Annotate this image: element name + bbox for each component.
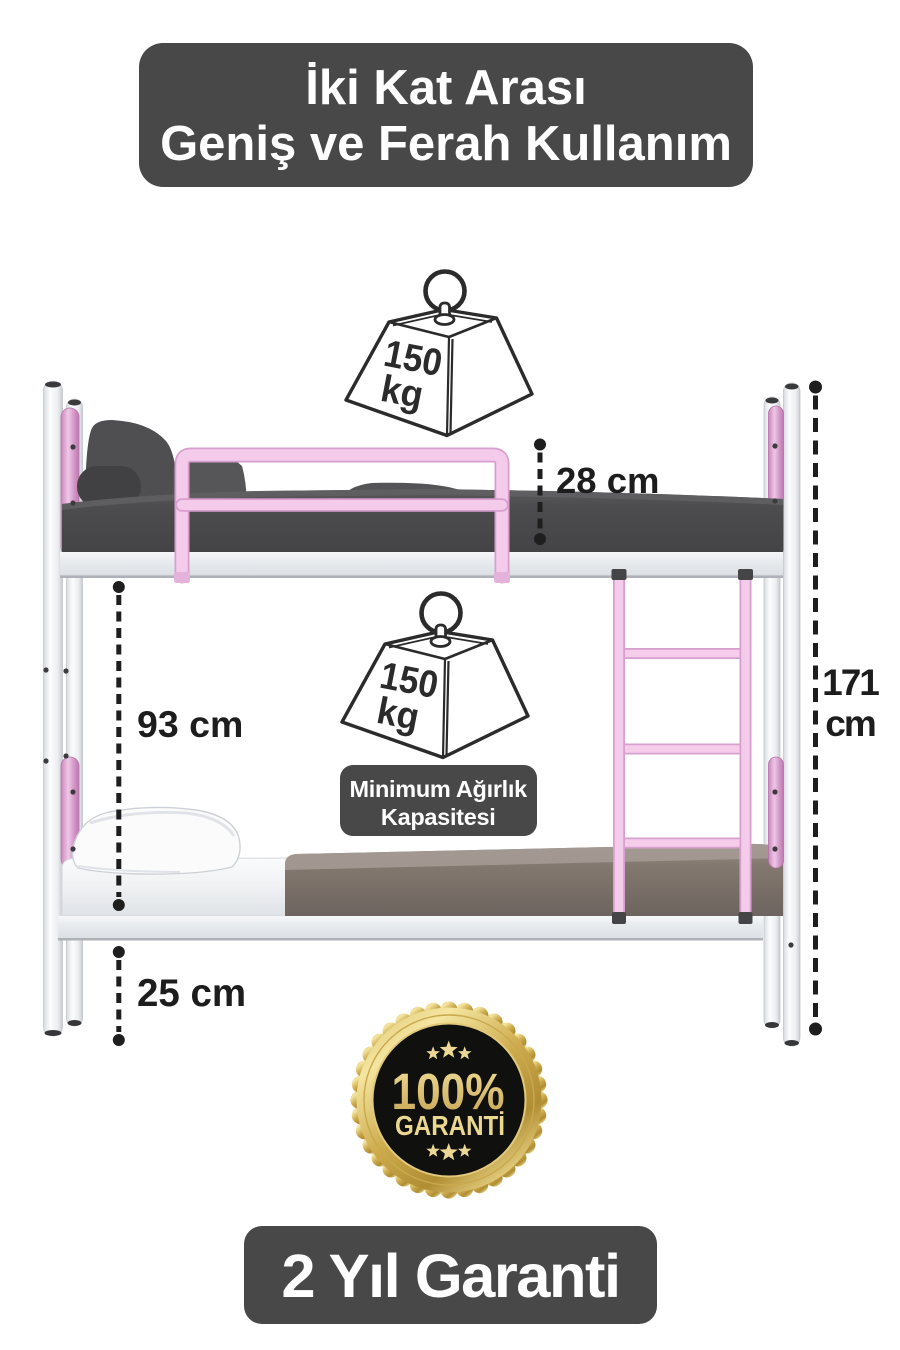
- svg-text:kg: kg: [373, 690, 422, 739]
- svg-text:GARANTİ: GARANTİ: [395, 1110, 505, 1141]
- svg-text:kg: kg: [377, 368, 426, 417]
